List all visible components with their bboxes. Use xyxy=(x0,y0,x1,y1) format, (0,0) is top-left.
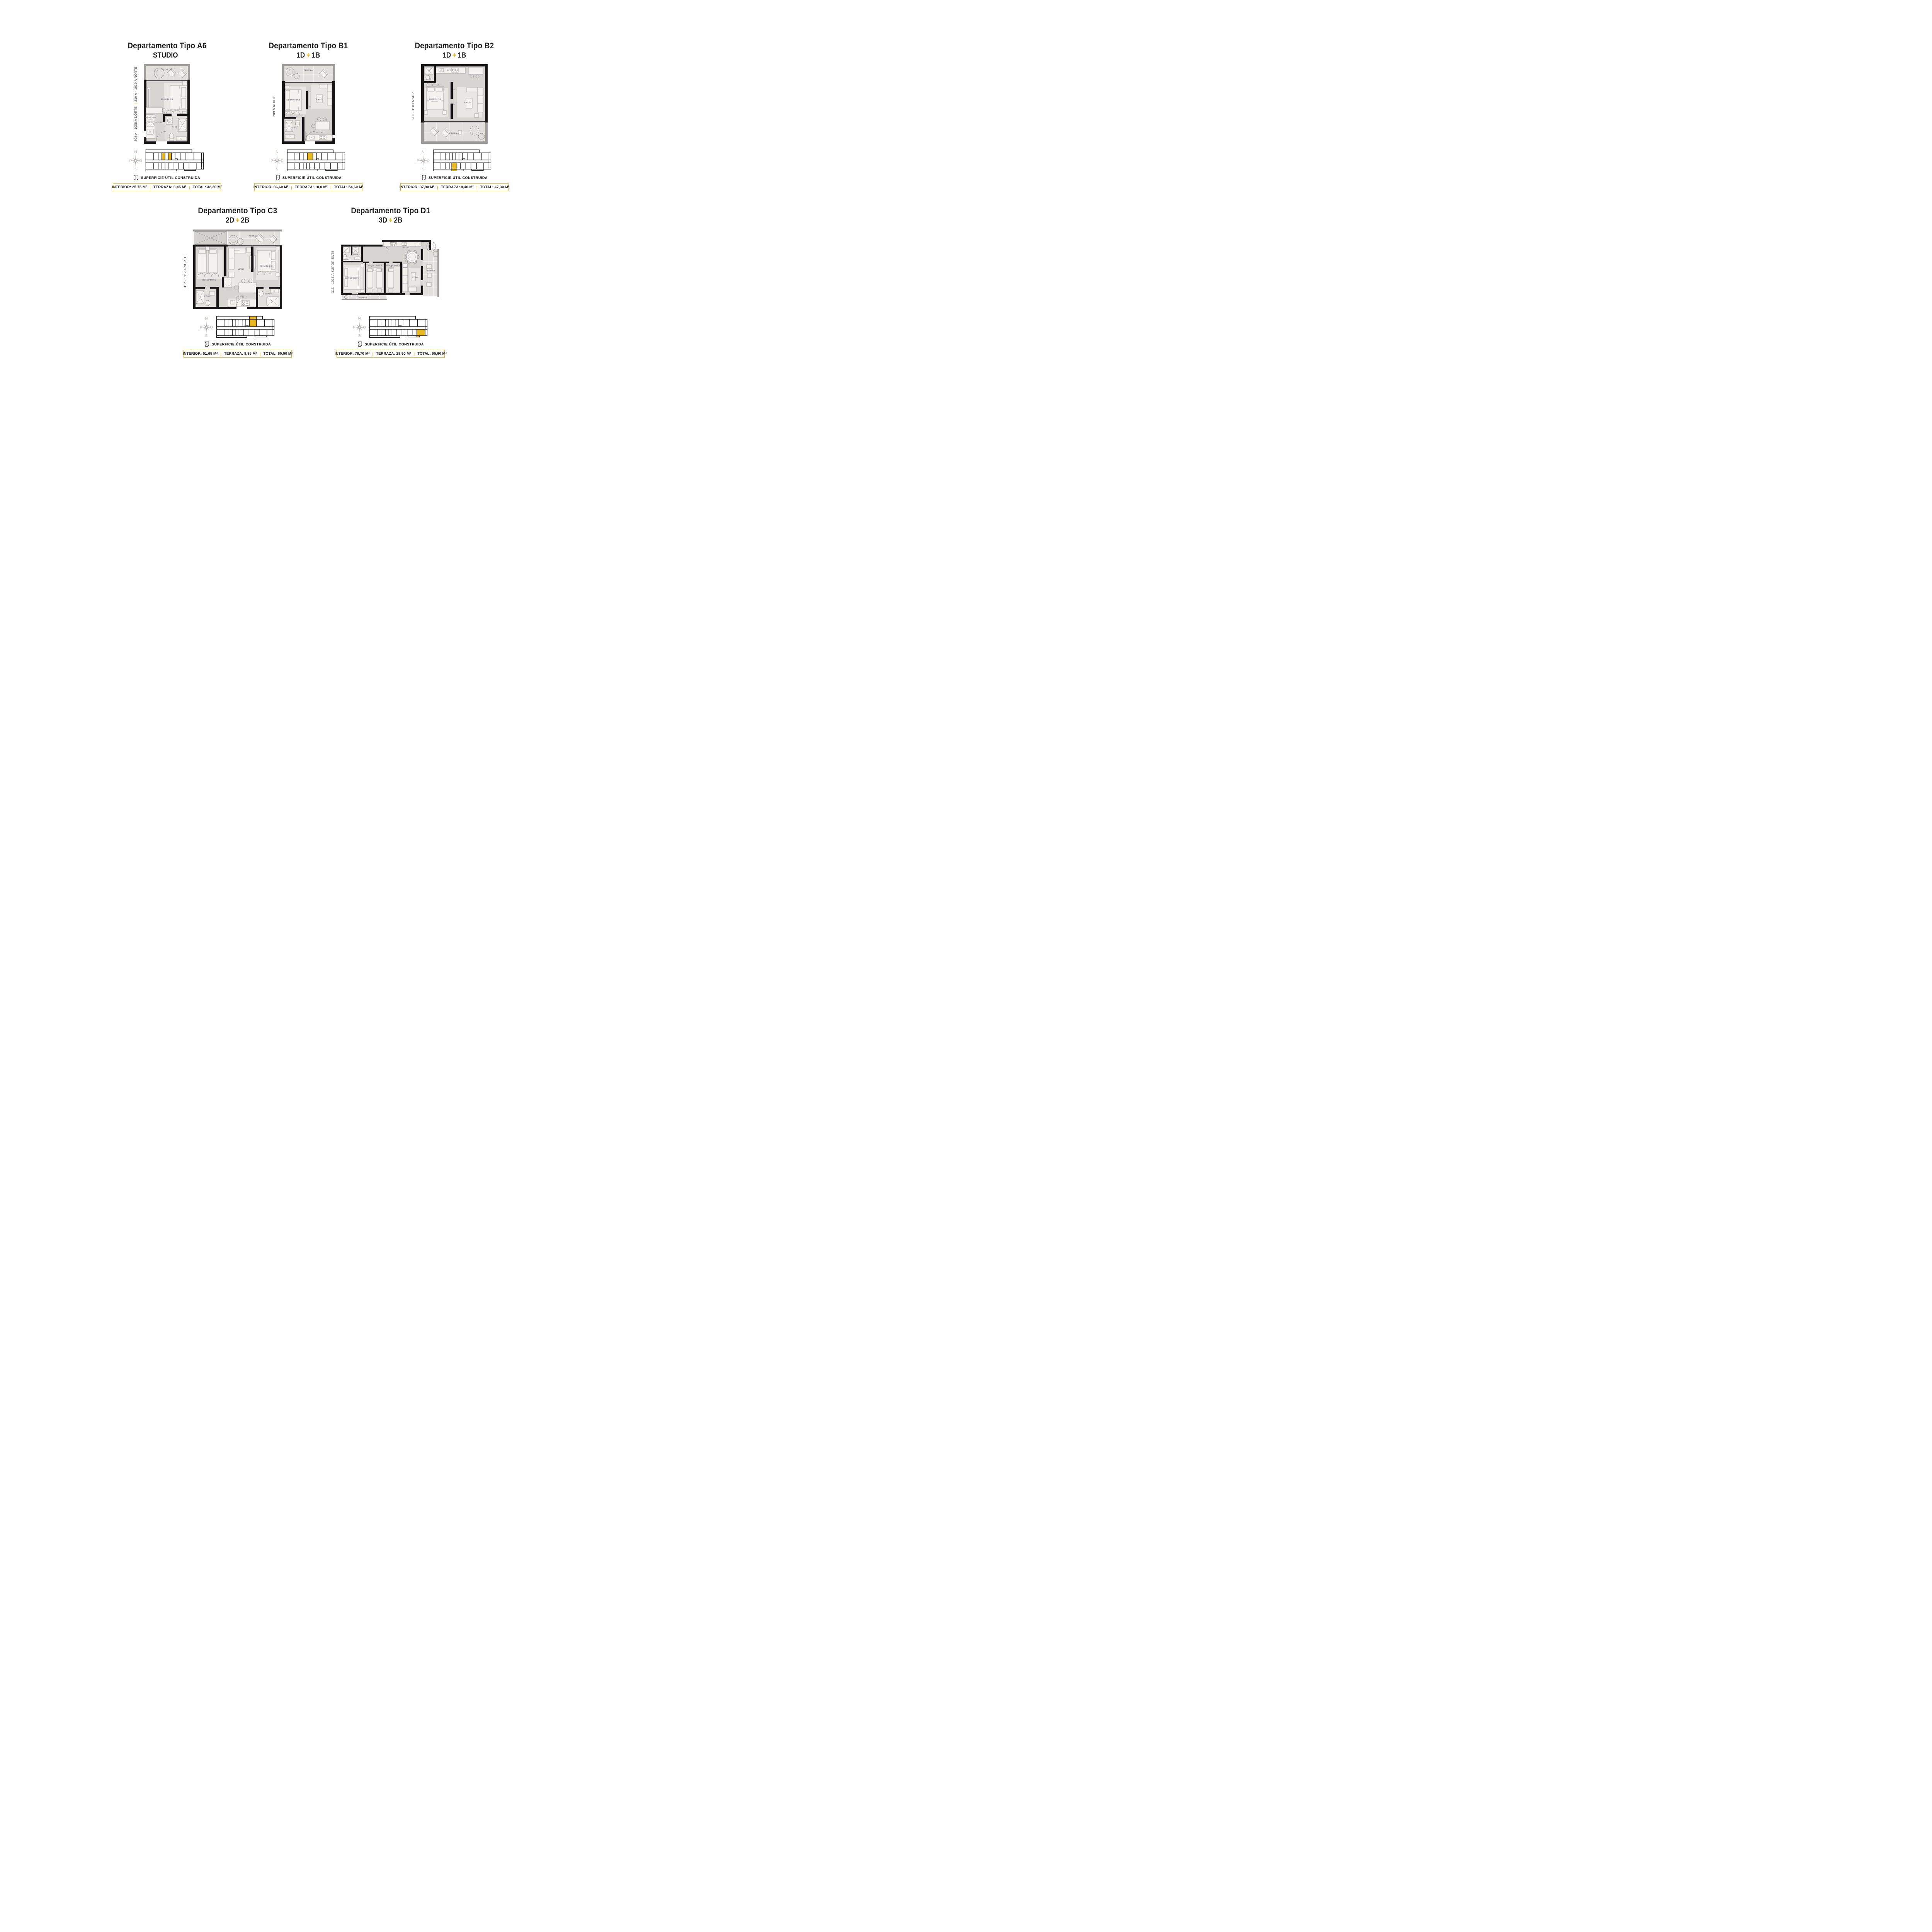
legend: SUPERFICIE ÚTIL CONSTRUIDA xyxy=(357,341,424,347)
card-tipo-b2: Departamento Tipo B2 1D+1B 203 - 1103 A … xyxy=(400,41,509,191)
room-label: COCINA xyxy=(402,247,410,248)
room-label: BAÑO xyxy=(172,126,177,128)
room-label: DORMITORIO 3 xyxy=(386,264,400,266)
building-plate-diagram xyxy=(369,315,429,338)
floorplan-brochure-page: { "accent_color": "#E8B822", "separator"… xyxy=(0,0,606,379)
blueprint-icon xyxy=(134,175,139,180)
compass-rose-icon: N P O S xyxy=(200,316,213,337)
building-plate-diagram xyxy=(145,149,205,171)
location-strip: N P O S xyxy=(129,149,205,171)
separator: | xyxy=(220,352,221,356)
legend-text: SUPERFICIE ÚTIL CONSTRUIDA xyxy=(141,176,200,180)
room-label: DORMITORIO xyxy=(429,98,441,100)
room-label: TERRAZA xyxy=(450,132,459,134)
room-label: LIVING xyxy=(316,98,322,100)
unit-label-divider: | xyxy=(134,104,138,105)
terrace-area: TERRAZA: 8,85 M² xyxy=(224,352,257,356)
card-title: Departamento Tipo C3 xyxy=(198,206,277,216)
subtitle-right: 1B xyxy=(458,51,466,60)
subtitle-right: 1B xyxy=(312,51,320,60)
unit-label-part1: 312 - 1012 A NORTE xyxy=(184,255,187,287)
compass-n: N xyxy=(134,150,137,154)
separator: | xyxy=(291,185,292,189)
location-strip: N P O S xyxy=(270,149,347,171)
card-tipo-d1: Departamento Tipo D1 3D+2B 315 - 1015 A … xyxy=(337,206,445,358)
compass-rose-icon: N P O S xyxy=(417,149,430,171)
total-area: TOTAL: 54,60 M² xyxy=(334,185,364,189)
plus-sign: + xyxy=(387,216,394,224)
plus-sign: + xyxy=(234,216,241,224)
unit-numbers-label: 312 - 1012 A NORTE xyxy=(184,229,187,310)
room-label: COCINA xyxy=(316,131,323,133)
floorplan-d1: COCINA BAÑO 2 BAÑO 1 DORMITORIO 1 DORMIT… xyxy=(341,240,440,300)
room-label: TERRAZA xyxy=(249,235,258,237)
card-subtitle: 1D+1B xyxy=(297,51,320,60)
compass-n: N xyxy=(276,150,278,154)
terrace-area: TERRAZA: 18,0 M² xyxy=(295,185,328,189)
compass-s: S xyxy=(134,167,136,171)
compass-p: P xyxy=(353,325,355,330)
unit-label-part2: 310 A - 1010 A NORTE xyxy=(134,66,138,102)
room-label: DORMITORIO 2 xyxy=(368,264,382,266)
legend: SUPERFICIE ÚTIL CONSTRUIDA xyxy=(204,341,271,347)
interior-area: INTERIOR: 51,65 M² xyxy=(183,352,218,356)
legend: SUPERFICIE ÚTIL CONSTRUIDA xyxy=(421,175,488,180)
room-label: LIVING xyxy=(412,276,418,278)
unit-numbers-label: 203 - 1103 A SUR xyxy=(412,64,415,144)
room-label: LIVING xyxy=(464,101,471,103)
unit-label-part1: 209 A NORTE xyxy=(272,95,276,116)
building-plate-diagram xyxy=(432,149,493,171)
areas-box: INTERIOR: 37,90 M²| TERRAZA: 9,40 M²| TO… xyxy=(400,183,509,191)
room-label: LIVING xyxy=(238,268,244,270)
subtitle-right: 2B xyxy=(241,216,250,224)
separator: | xyxy=(150,185,151,189)
card-title: Departamento Tipo B2 xyxy=(415,41,494,51)
fixture-annotation: TERMO BAJO MUEBLE xyxy=(145,117,156,118)
floorplan-area: 203 - 1103 A SUR xyxy=(421,64,488,144)
room-label: COCINA xyxy=(237,295,244,297)
room-label: DORMITORIO 2 xyxy=(202,279,216,281)
compass-s: S xyxy=(422,167,424,171)
card-subtitle: 1D+1B xyxy=(443,51,466,60)
blueprint-icon xyxy=(275,175,280,180)
legend: SUPERFICIE ÚTIL CONSTRUIDA xyxy=(134,175,200,180)
compass-p: P xyxy=(417,159,419,163)
card-title: Departamento Tipo A6 xyxy=(128,41,206,51)
room-label: BAÑO 1 xyxy=(344,259,350,260)
compass-n: N xyxy=(422,150,424,154)
card-subtitle: 3D+2B xyxy=(379,216,403,225)
floorplan-a6: TERMO BAJO MUEBLE TERRAZA DORMITORIO COC… xyxy=(144,64,190,144)
card-tipo-c3: Departamento Tipo C3 2D+2B 312 - 1012 A … xyxy=(184,206,292,358)
areas-box: INTERIOR: 36,60 M²| TERRAZA: 18,0 M²| TO… xyxy=(254,183,362,191)
areas-box: INTERIOR: 25,75 M²| TERRAZA: 6,45 M²| TO… xyxy=(113,183,221,191)
room-label: BAÑO xyxy=(291,126,296,128)
subtitle-left: 2D xyxy=(226,216,235,224)
card-subtitle: 2D+2B xyxy=(226,216,250,225)
compass-rose-icon: N P O S xyxy=(129,149,142,171)
unit-label-part1: 308 A - 1008 A NORTE xyxy=(134,106,138,141)
compass-n: N xyxy=(358,316,361,321)
floorplan-b2: COCINA BAÑO DORMITORIO LIVING TERRAZA xyxy=(421,64,488,144)
areas-box: INTERIOR: 51,65 M²| TERRAZA: 8,85 M²| TO… xyxy=(184,350,292,358)
subtitle-right: 2B xyxy=(394,216,403,224)
room-label: COCINA xyxy=(155,121,162,123)
room-label: BAÑO 1 xyxy=(265,293,272,295)
interior-area: INTERIOR: 36,60 M² xyxy=(253,185,288,189)
plus-sign: + xyxy=(451,51,457,60)
compass-p: P xyxy=(200,325,202,330)
separator: | xyxy=(260,352,261,356)
room-label: BAÑO 2 xyxy=(353,254,360,256)
separator: | xyxy=(372,352,374,356)
floorplan-area: 315 - 1015 A SURORIENTE xyxy=(341,229,440,310)
room-label: DORMITORIO xyxy=(161,98,173,100)
terrace-area: TERRAZA: 6,45 M² xyxy=(153,185,186,189)
floorplan-area: 209 A NORTE xyxy=(282,64,335,144)
room-label: DORMITORIO 1 xyxy=(260,265,274,267)
compass-s: S xyxy=(276,167,278,171)
subtitle-left: 3D xyxy=(379,216,388,224)
legend: SUPERFICIE ÚTIL CONSTRUIDA xyxy=(275,175,342,180)
compass-o: O xyxy=(210,325,213,330)
subtitle-left: 1D xyxy=(443,51,451,60)
card-title: Departamento Tipo B1 xyxy=(269,41,348,51)
room-label: TERRAZA xyxy=(304,69,313,71)
legend-text: SUPERFICIE ÚTIL CONSTRUIDA xyxy=(429,176,488,180)
compass-p: P xyxy=(129,159,131,163)
room-label: TERRAZA xyxy=(163,69,172,71)
separator: | xyxy=(189,185,190,189)
compass-p: P xyxy=(270,159,273,163)
subtitle-left: STUDIO xyxy=(153,51,178,60)
room-label: BAÑO 2 xyxy=(204,295,211,297)
compass-o: O xyxy=(139,159,142,163)
blueprint-icon xyxy=(421,175,426,180)
blueprint-icon xyxy=(357,341,362,347)
card-subtitle: STUDIO xyxy=(153,51,181,60)
unit-label-part1: 203 - 1103 A SUR xyxy=(412,92,415,120)
room-label: DORMITORIO 1 xyxy=(345,277,359,279)
location-strip: N P O S xyxy=(353,315,429,338)
room-label: BAÑO xyxy=(426,78,432,80)
separator: | xyxy=(330,185,332,189)
legend-text: SUPERFICIE ÚTIL CONSTRUIDA xyxy=(365,342,424,346)
interior-area: INTERIOR: 25,75 M² xyxy=(112,185,147,189)
location-strip: N P O S xyxy=(200,315,276,338)
legend-text: SUPERFICIE ÚTIL CONSTRUIDA xyxy=(212,342,271,346)
terrace-area: TERRAZA: 9,40 M² xyxy=(441,185,474,189)
interior-area: INTERIOR: 37,90 M² xyxy=(400,185,434,189)
floorplan-area: 312 - 1012 A NORTE xyxy=(193,229,282,310)
card-title: Departamento Tipo D1 xyxy=(351,206,430,216)
building-plate-diagram xyxy=(216,315,276,338)
floorplan-b1: TERRAZA DORMITORIO LIVING BAÑO COCINA xyxy=(282,64,335,144)
separator: | xyxy=(476,185,478,189)
subtitle-left: 1D xyxy=(297,51,305,60)
compass-s: S xyxy=(358,333,360,337)
compass-rose-icon: N P O S xyxy=(353,316,366,337)
compass-o: O xyxy=(363,325,366,330)
separator: | xyxy=(414,352,415,356)
location-strip: N P O S xyxy=(417,149,493,171)
terrace-area: TERRAZA: 18,90 M² xyxy=(376,352,411,356)
compass-o: O xyxy=(427,159,429,163)
unit-numbers-label: 315 - 1015 A SURORIENTE xyxy=(331,229,335,310)
room-label: DORMITORIO xyxy=(288,99,301,101)
plus-sign: + xyxy=(305,51,311,60)
unit-label-part1: 315 - 1015 A SURORIENTE xyxy=(331,250,335,293)
total-area: TOTAL: 95,60 M² xyxy=(417,352,447,356)
room-label: COCINA xyxy=(447,69,454,71)
plus-sign xyxy=(178,51,181,60)
total-area: TOTAL: 60,50 M² xyxy=(264,352,293,356)
compass-n: N xyxy=(205,316,207,321)
card-tipo-a6: Departamento Tipo A6 STUDIO 308 A - 1008… xyxy=(113,41,221,191)
card-tipo-b1: Departamento Tipo B1 1D+1B 209 A NORTE xyxy=(254,41,362,191)
areas-box: INTERIOR: 76,70 M²| TERRAZA: 18,90 M²| T… xyxy=(337,350,445,358)
legend-text: SUPERFICIE ÚTIL CONSTRUIDA xyxy=(282,176,342,180)
room-label: TERRAZA xyxy=(426,269,435,271)
floorplan-area: 308 A - 1008 A NORTE|310 A - 1010 A NORT… xyxy=(144,64,190,144)
unit-numbers-label: 308 A - 1008 A NORTE|310 A - 1010 A NORT… xyxy=(134,64,138,144)
room-label: TERRAZA xyxy=(358,296,367,298)
compass-s: S xyxy=(205,333,207,337)
interior-area: INTERIOR: 76,70 M² xyxy=(335,352,369,356)
separator: | xyxy=(437,185,438,189)
total-area: TOTAL: 32,20 M² xyxy=(193,185,222,189)
floorplan-c3: TERRAZA DORMITORIO 2 LIVING DORMITORIO 1… xyxy=(193,230,282,310)
compass-o: O xyxy=(281,159,283,163)
blueprint-icon xyxy=(204,341,209,347)
building-plate-diagram xyxy=(286,149,347,171)
unit-numbers-label: 209 A NORTE xyxy=(272,64,276,144)
total-area: TOTAL: 47,30 M² xyxy=(480,185,510,189)
compass-rose-icon: N P O S xyxy=(270,149,284,171)
